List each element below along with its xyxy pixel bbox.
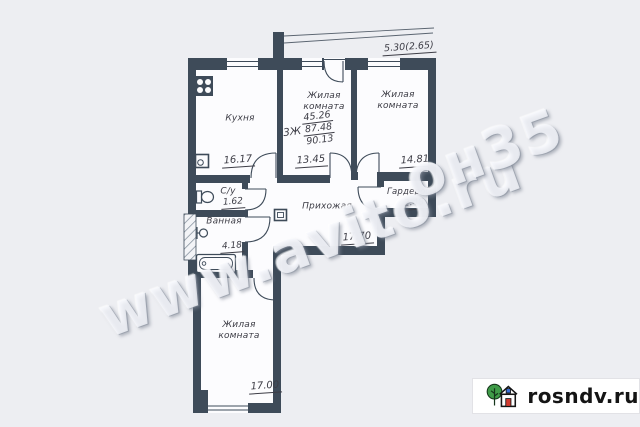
hallway-area: 17.70 bbox=[340, 230, 373, 245]
bathroom-label: Ванная bbox=[206, 217, 242, 228]
bathroom-area: 4.18 bbox=[220, 240, 245, 254]
toilet-icon bbox=[197, 191, 214, 203]
wardrobe-area: 2.48 bbox=[402, 197, 427, 211]
logo-site-name: rosndv.ru bbox=[527, 384, 639, 408]
room3-label: Жилая комната bbox=[210, 320, 268, 342]
room1-window bbox=[302, 58, 322, 70]
kitchen-area: 16.17 bbox=[221, 153, 254, 168]
wc-label: С/у bbox=[220, 187, 235, 198]
apartment-summary: 3Ж 45.26 87.48 90.13 bbox=[281, 109, 336, 150]
hatched-shaft bbox=[184, 214, 196, 260]
stove-icon bbox=[195, 76, 213, 96]
sink-icon bbox=[196, 155, 209, 168]
room2-label: Жилая комната bbox=[369, 90, 427, 112]
balcony-door-opening bbox=[324, 58, 345, 70]
room2-area: 14.81 bbox=[398, 153, 431, 168]
house-with-tree-icon bbox=[485, 381, 521, 411]
floorplan-drawing bbox=[0, 0, 640, 427]
room2-window bbox=[368, 58, 400, 70]
hallway-label: Прихожая bbox=[302, 202, 352, 213]
electrical-panel-icon bbox=[275, 210, 287, 221]
bathtub-icon bbox=[197, 255, 236, 273]
wc-area: 1.62 bbox=[221, 196, 246, 210]
kitchen-label: Кухня bbox=[225, 114, 254, 125]
kitchen-window bbox=[227, 58, 258, 70]
vent-shaft bbox=[273, 32, 284, 70]
rosndv-logo: rosndv.ru bbox=[472, 378, 640, 414]
floorplan-image: Кухня 16.17 Жилая комната 13.45 Жилая ко… bbox=[0, 0, 640, 427]
wardrobe-label: Гардероб bbox=[387, 187, 431, 197]
room3-window bbox=[208, 403, 248, 413]
room1-area: 13.45 bbox=[294, 153, 327, 168]
room3-area: 17.00 bbox=[248, 379, 281, 394]
apartment-type: 3Ж bbox=[282, 124, 301, 138]
